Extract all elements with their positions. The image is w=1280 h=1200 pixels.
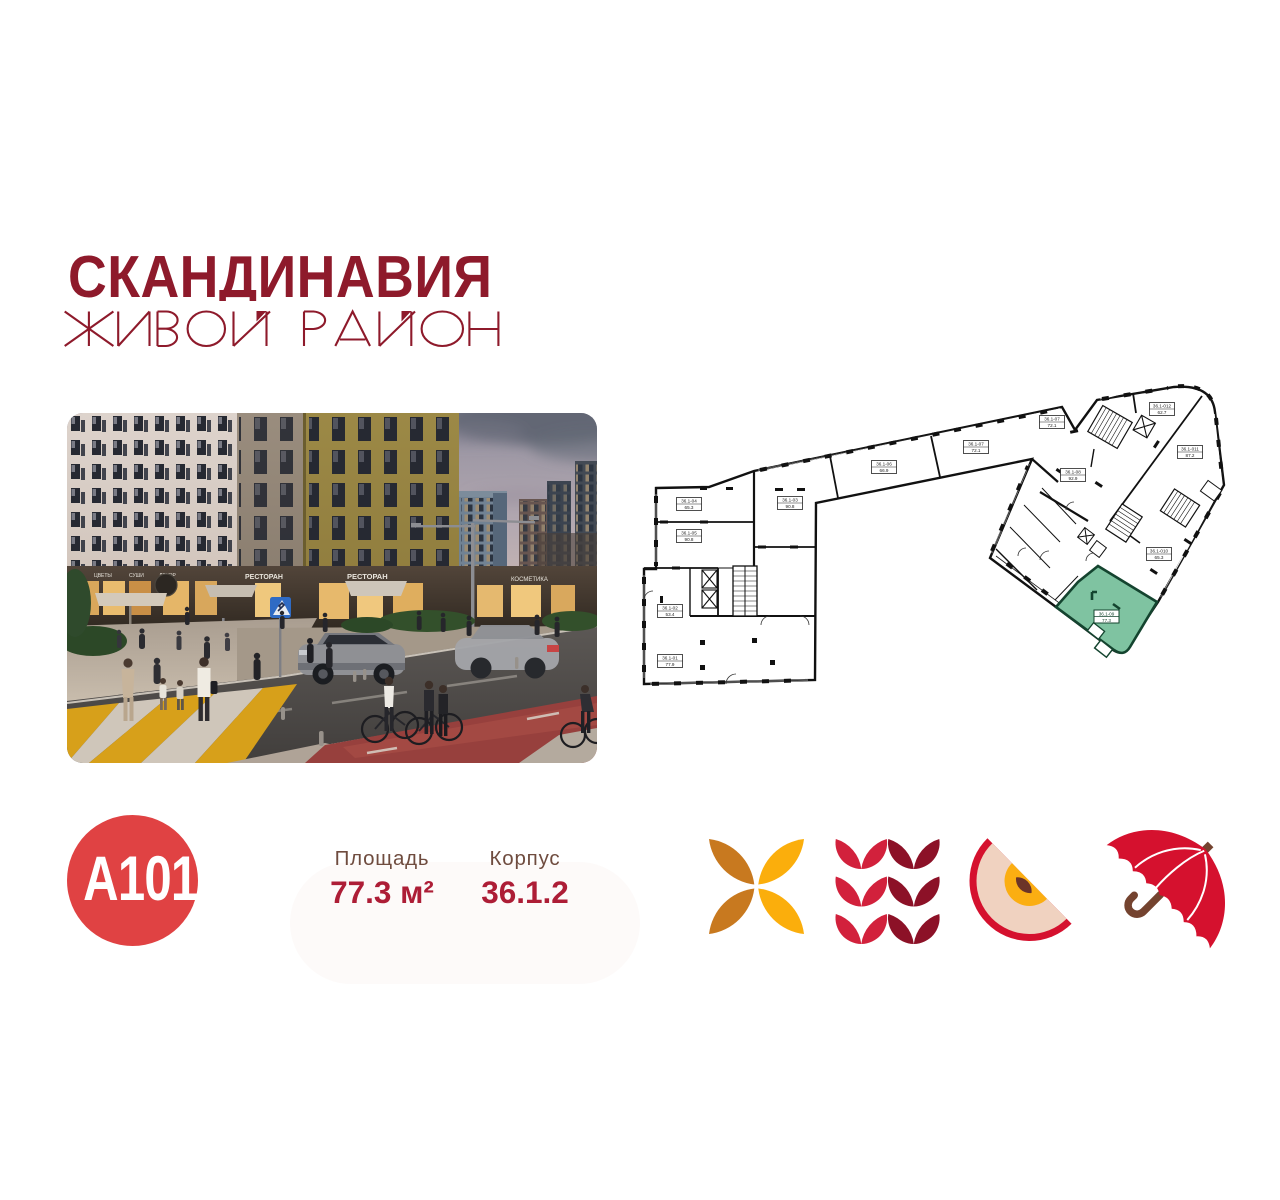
svg-text:РЕСТОРАН: РЕСТОРАН	[245, 574, 283, 581]
svg-text:36.1-012: 36.1-012	[1153, 404, 1172, 409]
svg-text:36.1-04: 36.1-04	[681, 499, 697, 504]
svg-text:90.8: 90.8	[786, 504, 795, 509]
svg-text:62.7: 62.7	[1158, 410, 1167, 415]
svg-text:РЕСТОРАН: РЕСТОРАН	[347, 572, 388, 581]
svg-text:72.1: 72.1	[1048, 423, 1057, 428]
svg-text:36.1-05: 36.1-05	[681, 531, 697, 536]
svg-text:87.2: 87.2	[1186, 453, 1195, 458]
svg-text:36.1-06: 36.1-06	[876, 462, 892, 467]
svg-text:36.1-02: 36.1-02	[662, 606, 678, 611]
svg-text:ЦВЕТЫ: ЦВЕТЫ	[94, 573, 112, 579]
svg-text:36.1-08: 36.1-08	[1065, 470, 1081, 475]
svg-text:36.1-03: 36.1-03	[782, 498, 798, 503]
svg-text:36.1-010: 36.1-010	[1150, 549, 1169, 554]
svg-text:65.3: 65.3	[685, 505, 694, 510]
svg-text:СУШИ: СУШИ	[129, 573, 144, 579]
svg-text:36.1-011: 36.1-011	[1181, 447, 1199, 452]
svg-text:65.3: 65.3	[1155, 555, 1164, 560]
svg-text:36.1-01: 36.1-01	[662, 656, 678, 661]
svg-text:92.9: 92.9	[1069, 476, 1078, 481]
svg-text:36.1-07: 36.1-07	[1044, 417, 1060, 422]
svg-text:77.9: 77.9	[666, 662, 675, 667]
svg-text:90.8: 90.8	[685, 537, 694, 542]
svg-text:36.1-09: 36.1-09	[1099, 611, 1115, 616]
svg-text:53.4: 53.4	[666, 612, 675, 617]
svg-text:КОСМЕТИКА: КОСМЕТИКА	[511, 577, 548, 583]
svg-text:72.1: 72.1	[972, 448, 981, 453]
svg-text:36.1-07: 36.1-07	[968, 442, 984, 447]
svg-text:66.9: 66.9	[880, 468, 889, 473]
svg-text:77.3: 77.3	[1102, 618, 1111, 623]
